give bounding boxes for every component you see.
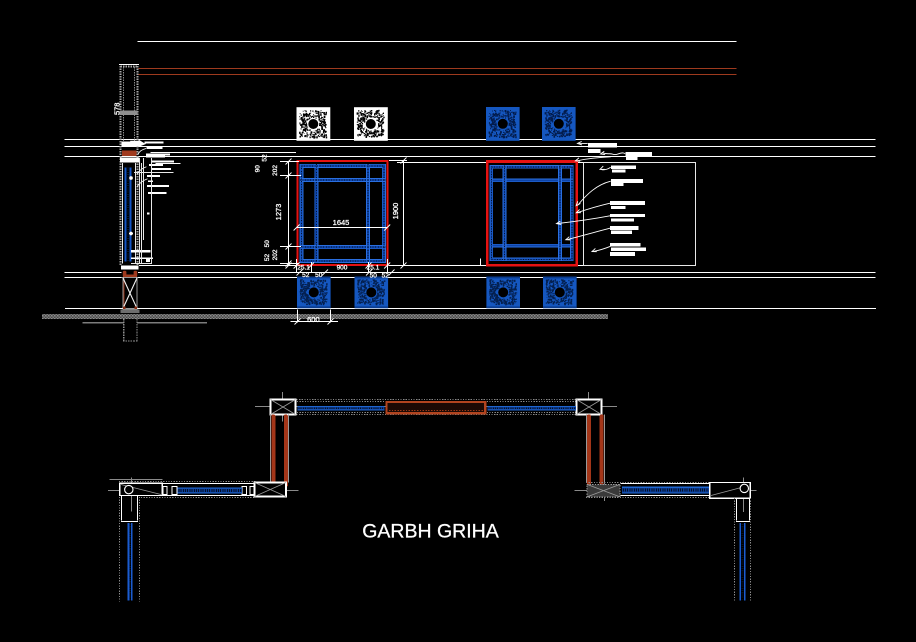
svg-text:52: 52	[262, 154, 269, 162]
svg-text:202: 202	[272, 249, 279, 260]
svg-text:600: 600	[307, 315, 320, 324]
svg-text:578: 578	[112, 103, 121, 116]
svg-text:50: 50	[264, 240, 271, 248]
svg-text:52: 52	[382, 272, 390, 279]
svg-text:50: 50	[370, 272, 378, 279]
svg-text:52: 52	[302, 272, 310, 279]
svg-text:GARBH GRIHA: GARBH GRIHA	[362, 520, 499, 542]
svg-text:50: 50	[315, 272, 323, 279]
svg-text:202: 202	[272, 165, 279, 176]
svg-text:1273: 1273	[274, 204, 283, 221]
svg-text:1900: 1900	[391, 203, 400, 220]
svg-text:900: 900	[337, 264, 348, 271]
svg-text:1645: 1645	[333, 218, 350, 227]
svg-text:90: 90	[255, 165, 262, 173]
svg-text:52: 52	[264, 254, 271, 262]
